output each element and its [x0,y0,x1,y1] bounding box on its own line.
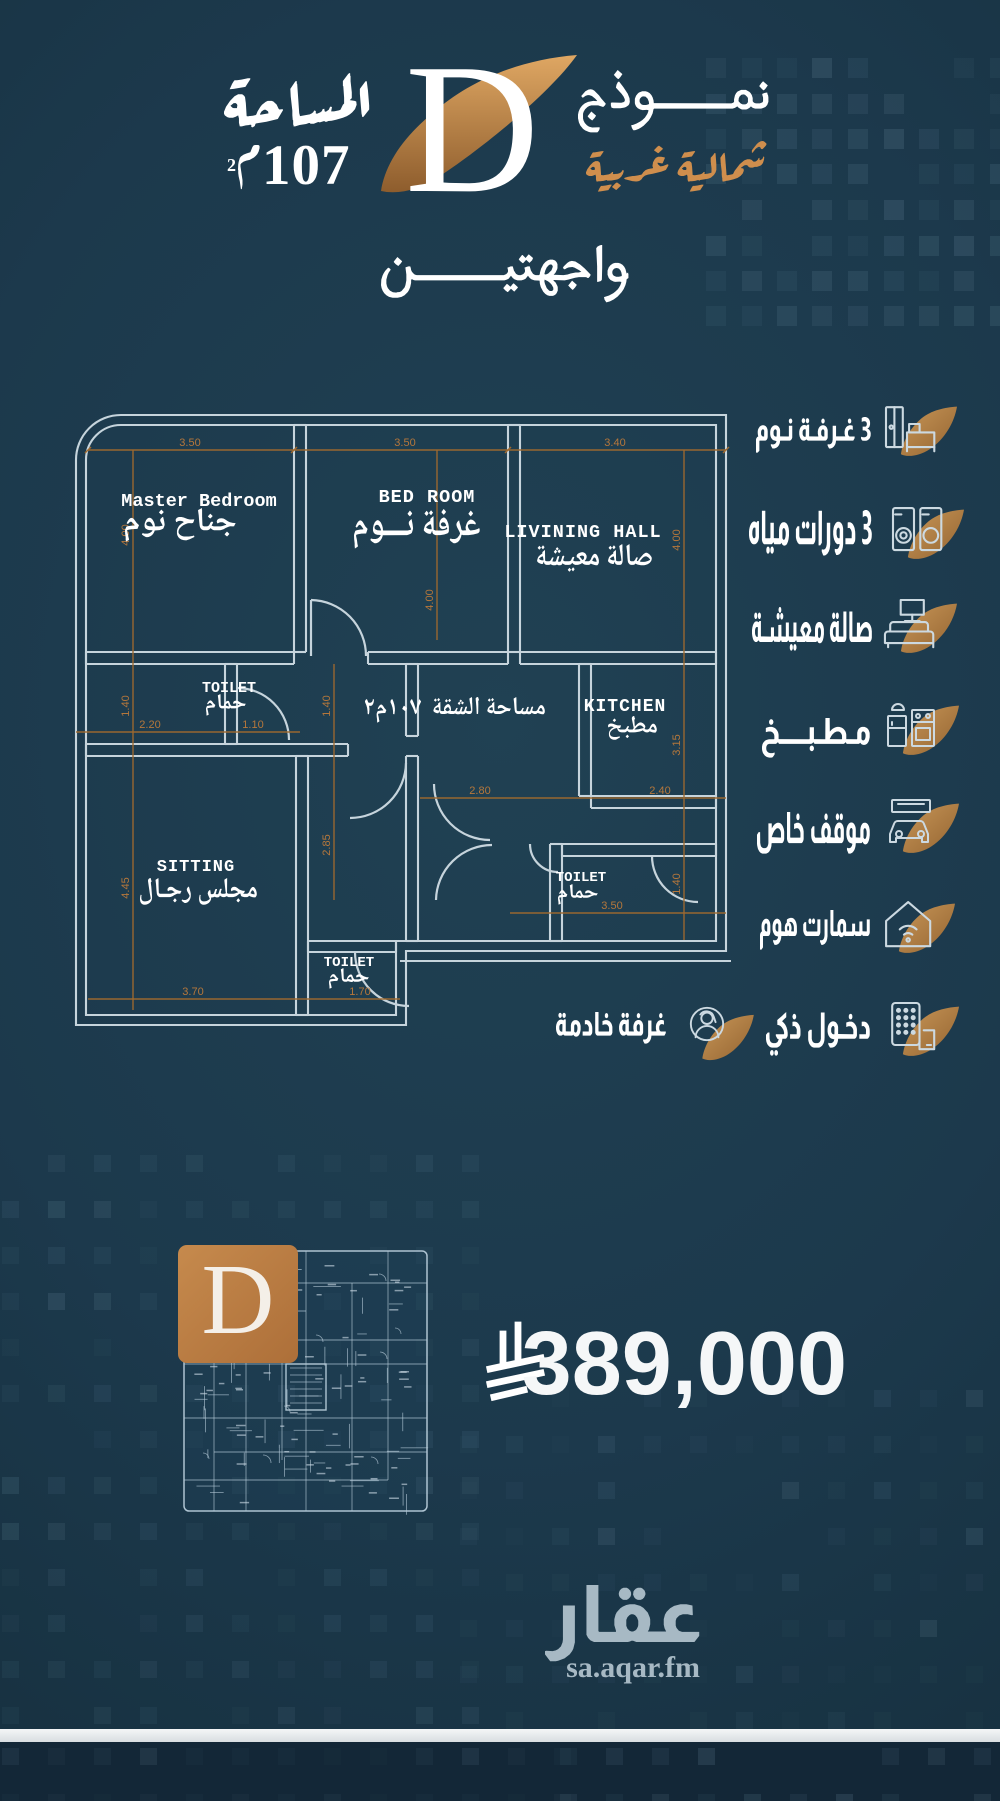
svg-text:1.10: 1.10 [242,719,263,731]
svg-text:Master Bedroom: Master Bedroom [121,491,276,512]
svg-text:D: D [405,26,539,232]
svg-text:3.15: 3.15 [671,734,683,755]
svg-text:4.00: 4.00 [424,589,436,610]
svg-text:2.80: 2.80 [469,785,490,797]
svg-text:sa.aqar.fm: sa.aqar.fm [566,1651,700,1684]
svg-text:2: 2 [227,155,236,175]
svg-text:2.20: 2.20 [139,719,160,731]
svg-text:3.50: 3.50 [601,900,622,912]
svg-text:3.50: 3.50 [394,437,415,449]
svg-text:D: D [202,1243,275,1355]
svg-text:2.85: 2.85 [321,834,333,855]
svg-text:4.45: 4.45 [120,877,132,898]
svg-text:2.40: 2.40 [649,785,670,797]
svg-text:BED ROOM: BED ROOM [379,487,476,508]
svg-text:SITTING: SITTING [157,858,235,877]
svg-text:3.40: 3.40 [604,437,625,449]
svg-text:3.50: 3.50 [179,437,200,449]
svg-text:4.00: 4.00 [671,529,683,550]
svg-text:3.70: 3.70 [182,986,203,998]
svg-text:1.40: 1.40 [120,695,132,716]
svg-text:TOILET: TOILET [324,955,374,971]
svg-text:KITCHEN: KITCHEN [584,697,667,717]
svg-text:1.70: 1.70 [349,986,370,998]
svg-text:389,000: 389,000 [522,1314,847,1414]
svg-text:107: 107 [262,134,351,197]
svg-text:1.40: 1.40 [671,873,683,894]
svg-text:TOILET: TOILET [556,870,606,886]
svg-text:LIVINING HALL: LIVINING HALL [504,522,661,543]
svg-text:1.40: 1.40 [321,695,333,716]
svg-text:TOILET: TOILET [202,680,256,697]
